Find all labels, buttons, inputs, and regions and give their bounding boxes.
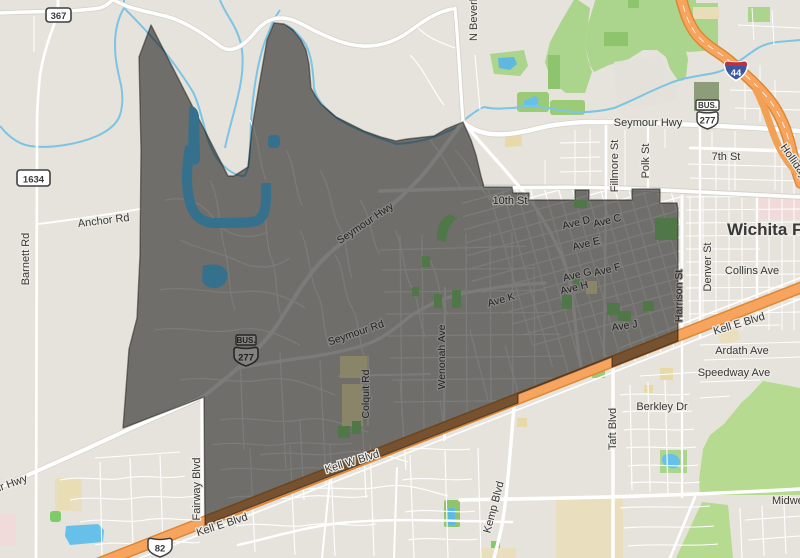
svg-text:Colquit Rd: Colquit Rd [360,369,372,418]
svg-text:Polk St: Polk St [640,144,652,179]
svg-text:367: 367 [51,11,67,22]
svg-text:Berkley Dr: Berkley Dr [636,401,688,413]
svg-text:Seymour Hwy: Seymour Hwy [614,117,683,129]
svg-text:Collins Ave: Collins Ave [725,265,779,277]
svg-text:BUS.: BUS. [236,336,255,345]
svg-text:N Beverly: N Beverly [468,0,480,41]
svg-text:7th St: 7th St [712,151,741,163]
svg-text:44: 44 [731,68,742,79]
svg-text:Fillmore St: Fillmore St [609,140,621,193]
svg-text:82: 82 [155,544,166,555]
svg-text:Denver St: Denver St [702,243,714,292]
svg-text:277: 277 [238,353,254,364]
svg-text:Wichita Falls: Wichita Falls [727,220,800,239]
svg-text:Harrison St: Harrison St [673,270,685,323]
svg-text:Taft Blvd: Taft Blvd [607,408,619,450]
svg-text:Speedway Ave: Speedway Ave [698,367,771,379]
svg-text:Barnett Rd: Barnett Rd [20,233,32,286]
svg-text:Midwestern: Midwestern [772,495,800,507]
svg-text:277: 277 [700,116,716,127]
svg-text:Ardath Ave: Ardath Ave [715,345,769,357]
svg-text:BUS.: BUS. [698,101,717,110]
svg-text:Fairway Blvd: Fairway Blvd [191,458,203,521]
svg-text:10th St: 10th St [493,195,528,207]
svg-text:1634: 1634 [23,175,45,186]
svg-text:Wenonah Ave: Wenonah Ave [436,324,448,389]
